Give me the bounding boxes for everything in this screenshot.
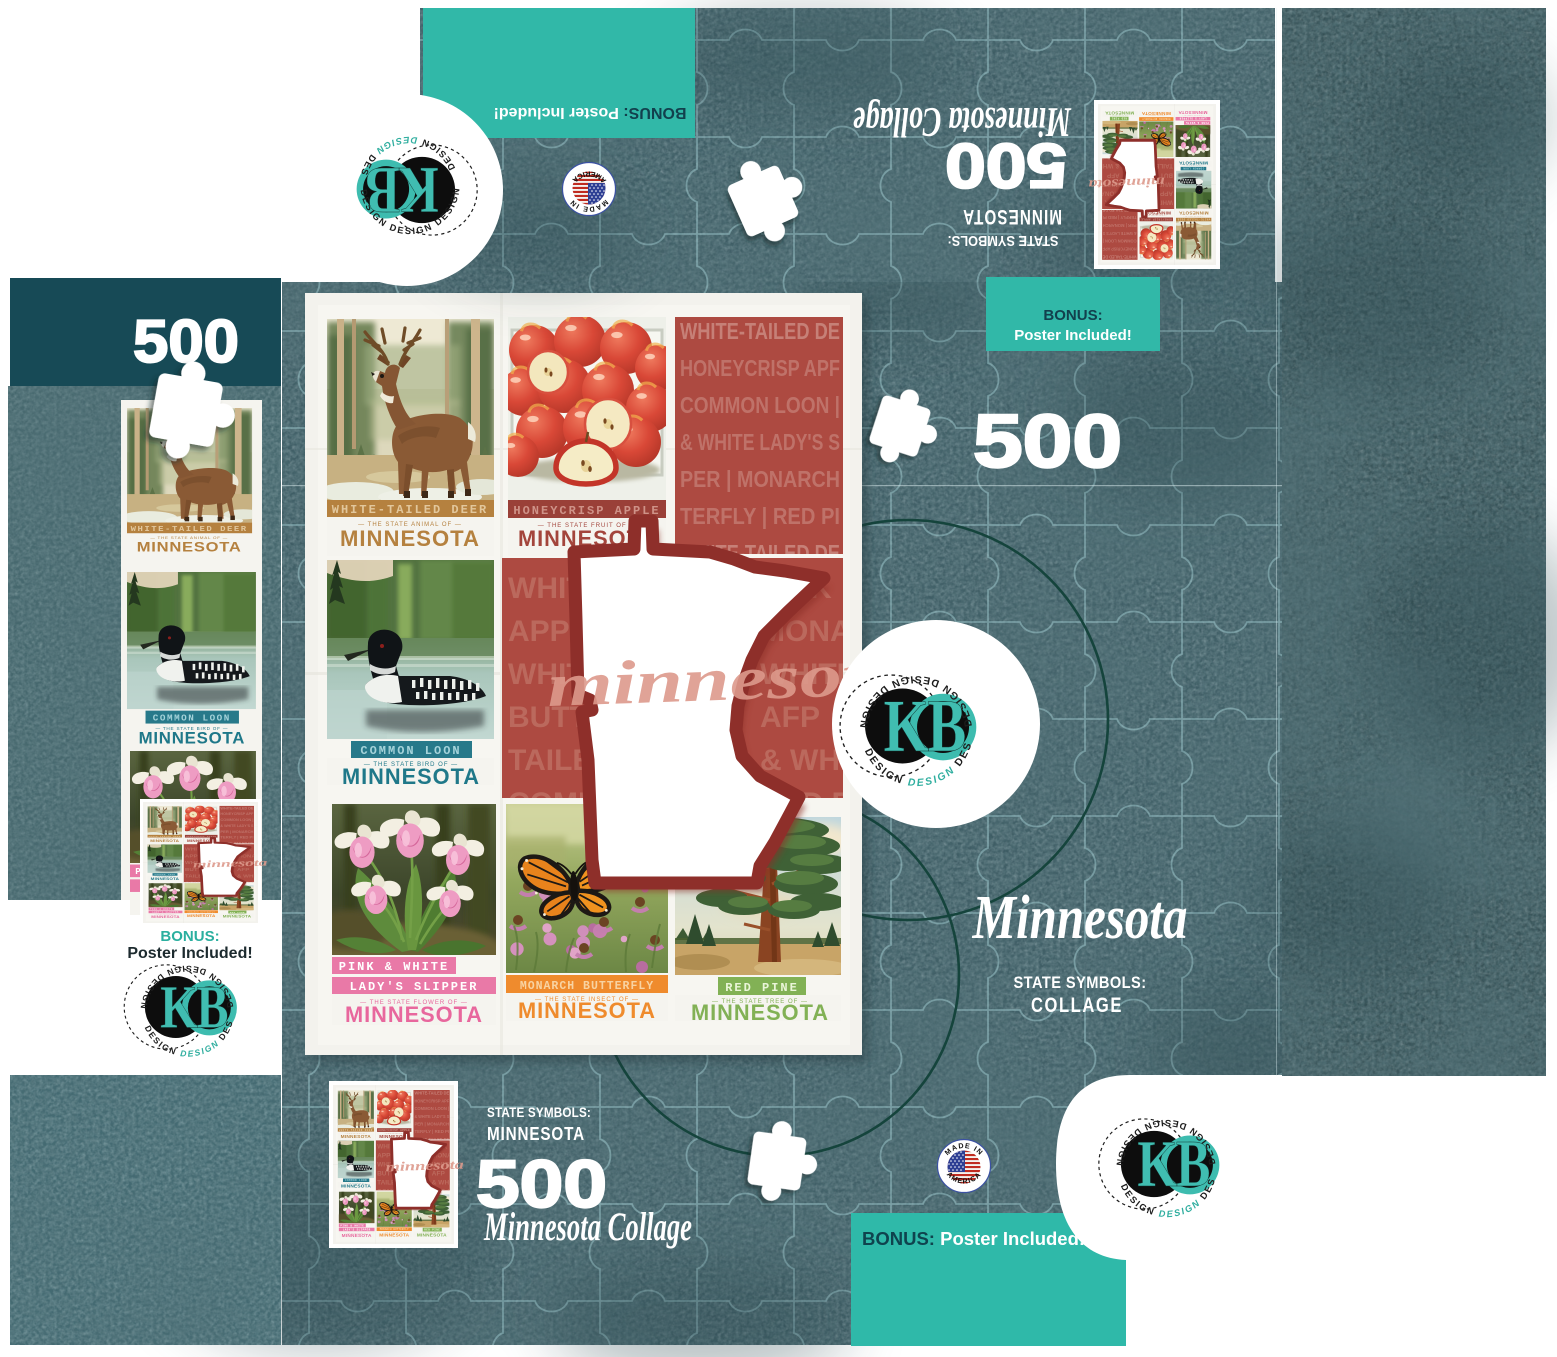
svg-text:BONUS:: BONUS: bbox=[1043, 307, 1102, 324]
svg-text:BONUS: Poster Included!: BONUS: Poster Included! bbox=[862, 1228, 1085, 1249]
svg-text:STATE SYMBOLS:: STATE SYMBOLS: bbox=[948, 232, 1059, 249]
svg-text:MINNESOTA: MINNESOTA bbox=[962, 205, 1062, 228]
svg-text:Minnesota Collage: Minnesota Collage bbox=[483, 1204, 692, 1249]
svg-text:COLLAGE: COLLAGE bbox=[1031, 994, 1123, 1017]
svg-text:MINNESOTA: MINNESOTA bbox=[487, 1124, 585, 1144]
svg-text:STATE SYMBOLS:: STATE SYMBOLS: bbox=[487, 1105, 591, 1120]
svg-text:STATE SYMBOLS:: STATE SYMBOLS: bbox=[1014, 973, 1147, 992]
svg-text:500: 500 bbox=[973, 399, 1122, 483]
svg-text:BONUS: Poster Included!: BONUS: Poster Included! bbox=[494, 104, 687, 121]
svg-text:Poster Included!: Poster Included! bbox=[127, 945, 252, 962]
svg-text:BONUS:: BONUS: bbox=[160, 928, 219, 945]
svg-text:Minnesota: Minnesota bbox=[972, 884, 1188, 952]
svg-text:Poster Included!: Poster Included! bbox=[1014, 327, 1132, 344]
svg-text:500: 500 bbox=[945, 130, 1067, 200]
